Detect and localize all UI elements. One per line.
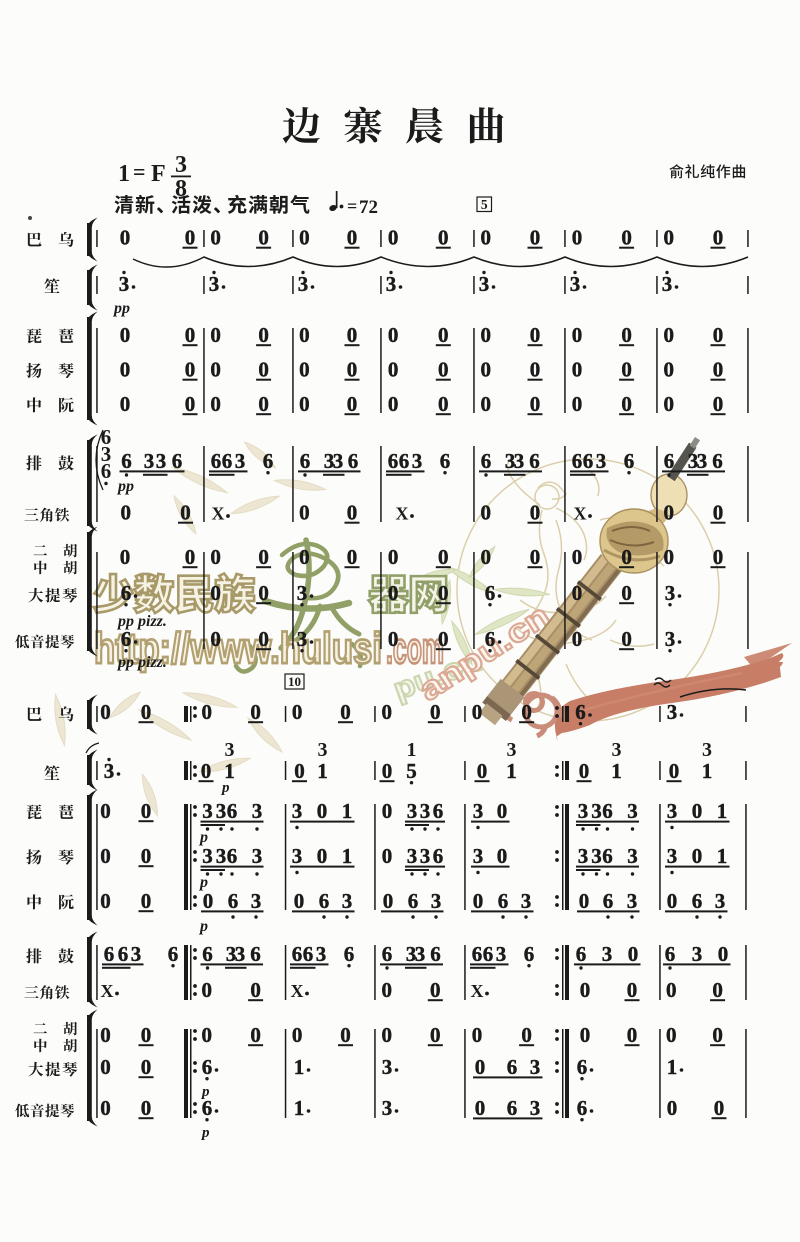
svg-text:3: 3 xyxy=(216,799,227,823)
svg-text:0: 0 xyxy=(210,392,221,416)
svg-text:6: 6 xyxy=(228,889,239,913)
svg-text:10: 10 xyxy=(288,674,301,689)
svg-text:3: 3 xyxy=(144,449,155,473)
svg-text:0: 0 xyxy=(141,799,152,823)
svg-text:0: 0 xyxy=(120,358,131,382)
svg-text:6: 6 xyxy=(483,942,494,966)
svg-text:0: 0 xyxy=(141,1096,152,1120)
svg-text:0: 0 xyxy=(299,323,310,347)
svg-text:3: 3 xyxy=(407,799,418,823)
svg-text:p: p xyxy=(220,780,230,796)
svg-text:0: 0 xyxy=(294,889,305,913)
svg-text:0: 0 xyxy=(572,323,583,347)
svg-text:0: 0 xyxy=(530,358,541,382)
svg-text:0: 0 xyxy=(664,358,675,382)
svg-text:6: 6 xyxy=(692,889,703,913)
svg-text:X: X xyxy=(574,504,587,524)
svg-text:6: 6 xyxy=(211,449,222,473)
svg-text:0: 0 xyxy=(100,889,111,913)
svg-text:0: 0 xyxy=(621,226,632,250)
svg-text:0: 0 xyxy=(572,627,583,651)
svg-text:1: 1 xyxy=(118,161,130,187)
svg-text:0: 0 xyxy=(202,978,213,1002)
svg-text:6: 6 xyxy=(624,449,635,473)
svg-text:0: 0 xyxy=(521,1023,532,1047)
svg-text:6: 6 xyxy=(712,449,723,473)
svg-text:0: 0 xyxy=(347,323,358,347)
svg-text:6: 6 xyxy=(524,942,535,966)
svg-text:3: 3 xyxy=(216,844,227,868)
svg-text:3: 3 xyxy=(612,739,622,761)
svg-text:3: 3 xyxy=(530,1055,541,1079)
svg-text:3: 3 xyxy=(702,739,712,761)
svg-text:0: 0 xyxy=(572,226,583,250)
svg-text:6: 6 xyxy=(507,1055,518,1079)
svg-text:0: 0 xyxy=(347,358,358,382)
svg-text:3: 3 xyxy=(627,889,638,913)
svg-text:0: 0 xyxy=(340,1023,351,1047)
svg-text:0: 0 xyxy=(530,501,541,525)
svg-text:0: 0 xyxy=(713,358,724,382)
svg-text:0: 0 xyxy=(258,358,269,382)
svg-text:3: 3 xyxy=(602,942,613,966)
svg-text:pp: pp xyxy=(112,300,130,317)
svg-text:6: 6 xyxy=(319,889,330,913)
svg-text:6: 6 xyxy=(430,942,441,966)
svg-text:0: 0 xyxy=(185,392,196,416)
svg-text:6: 6 xyxy=(433,844,444,868)
svg-text:F: F xyxy=(151,161,166,187)
svg-text:X: X xyxy=(291,981,304,1001)
svg-text:0: 0 xyxy=(250,700,261,724)
svg-text:3: 3 xyxy=(514,449,525,473)
svg-text:1: 1 xyxy=(702,759,713,783)
svg-text:0: 0 xyxy=(621,358,632,382)
svg-text:0: 0 xyxy=(141,700,152,724)
svg-text:0: 0 xyxy=(340,700,351,724)
svg-text:0: 0 xyxy=(621,323,632,347)
svg-text:0: 0 xyxy=(430,700,441,724)
svg-text:0: 0 xyxy=(299,501,310,525)
svg-text:0: 0 xyxy=(572,581,583,605)
svg-text:72: 72 xyxy=(359,197,378,218)
svg-text:3: 3 xyxy=(415,942,426,966)
svg-text:3: 3 xyxy=(420,799,431,823)
svg-text:0: 0 xyxy=(475,1096,486,1120)
svg-text:3: 3 xyxy=(202,799,213,823)
svg-text:3: 3 xyxy=(297,581,308,605)
svg-text:0: 0 xyxy=(347,392,358,416)
svg-text:0: 0 xyxy=(627,1023,638,1047)
svg-text:6: 6 xyxy=(263,449,274,473)
svg-text:3: 3 xyxy=(382,1096,393,1120)
svg-text:3: 3 xyxy=(667,799,678,823)
svg-text:3: 3 xyxy=(667,700,678,724)
svg-text:0: 0 xyxy=(141,889,152,913)
svg-text:=: = xyxy=(347,196,357,216)
svg-text:0: 0 xyxy=(381,700,392,724)
svg-text:1: 1 xyxy=(342,799,353,823)
svg-text:3: 3 xyxy=(407,844,418,868)
svg-text:0: 0 xyxy=(141,1023,152,1047)
svg-text:0: 0 xyxy=(210,545,221,569)
svg-text:0: 0 xyxy=(473,889,484,913)
svg-text:0: 0 xyxy=(299,358,310,382)
svg-text:3: 3 xyxy=(692,942,703,966)
svg-text:pp pizz.: pp pizz. xyxy=(116,654,167,671)
svg-text:6: 6 xyxy=(498,889,509,913)
svg-text:0: 0 xyxy=(382,844,393,868)
svg-text:6: 6 xyxy=(485,627,496,651)
svg-text:6: 6 xyxy=(602,844,613,868)
svg-text:3: 3 xyxy=(627,844,638,868)
svg-text:0: 0 xyxy=(438,581,449,605)
svg-text:3: 3 xyxy=(530,1096,541,1120)
svg-text:0: 0 xyxy=(438,323,449,347)
svg-text:0: 0 xyxy=(628,942,639,966)
svg-text:0: 0 xyxy=(317,799,328,823)
svg-text:6: 6 xyxy=(292,942,303,966)
svg-text:3: 3 xyxy=(382,1055,393,1079)
svg-text:3: 3 xyxy=(473,799,484,823)
svg-text:3: 3 xyxy=(235,942,246,966)
svg-text:6: 6 xyxy=(250,942,261,966)
svg-text:0: 0 xyxy=(299,226,310,250)
svg-text:p: p xyxy=(200,1125,210,1141)
svg-text:6: 6 xyxy=(665,942,676,966)
svg-text:0: 0 xyxy=(210,358,221,382)
svg-text:0: 0 xyxy=(497,799,508,823)
svg-text:6: 6 xyxy=(121,581,132,605)
svg-text:0: 0 xyxy=(521,700,532,724)
svg-text:0: 0 xyxy=(472,1023,483,1047)
svg-text:6: 6 xyxy=(408,889,419,913)
svg-text:0: 0 xyxy=(579,889,590,913)
svg-text:3: 3 xyxy=(251,889,262,913)
svg-text:0: 0 xyxy=(100,799,111,823)
svg-text:0: 0 xyxy=(666,978,677,1002)
svg-text:0: 0 xyxy=(714,1096,725,1120)
svg-text:3: 3 xyxy=(697,449,708,473)
svg-text:6: 6 xyxy=(222,449,233,473)
svg-text:pp: pp xyxy=(116,478,134,495)
svg-text:3: 3 xyxy=(342,889,353,913)
svg-text:6: 6 xyxy=(202,1096,213,1120)
svg-text:0: 0 xyxy=(438,392,449,416)
svg-text:6: 6 xyxy=(202,1055,213,1079)
svg-text:0: 0 xyxy=(258,323,269,347)
svg-text:0: 0 xyxy=(210,627,221,651)
svg-text:1: 1 xyxy=(342,844,353,868)
svg-text:0: 0 xyxy=(347,226,358,250)
svg-text:3: 3 xyxy=(570,272,581,296)
svg-text:0: 0 xyxy=(258,545,269,569)
svg-text:0: 0 xyxy=(430,978,441,1002)
svg-text:0: 0 xyxy=(481,392,492,416)
svg-text:0: 0 xyxy=(210,226,221,250)
svg-text:3: 3 xyxy=(665,581,676,605)
svg-text:0: 0 xyxy=(210,581,221,605)
svg-text:3: 3 xyxy=(292,799,303,823)
svg-text:0: 0 xyxy=(713,323,724,347)
svg-text:0: 0 xyxy=(692,799,703,823)
svg-text:0: 0 xyxy=(382,759,393,783)
svg-text:6: 6 xyxy=(575,700,586,724)
svg-text:3: 3 xyxy=(591,799,602,823)
svg-text:0: 0 xyxy=(666,1023,677,1047)
svg-text:3: 3 xyxy=(412,449,423,473)
svg-text:6: 6 xyxy=(572,449,583,473)
svg-text:X: X xyxy=(212,504,225,524)
svg-text:0: 0 xyxy=(530,226,541,250)
svg-text:6: 6 xyxy=(481,449,492,473)
svg-text:3: 3 xyxy=(420,844,431,868)
svg-text:X: X xyxy=(471,981,484,1001)
svg-text:3: 3 xyxy=(119,272,130,296)
svg-text:0: 0 xyxy=(572,392,583,416)
svg-text:0: 0 xyxy=(202,700,213,724)
svg-text:0: 0 xyxy=(202,1023,213,1047)
svg-text:0: 0 xyxy=(713,226,724,250)
svg-text:0: 0 xyxy=(120,545,131,569)
svg-text:3: 3 xyxy=(496,942,507,966)
svg-text:0: 0 xyxy=(718,942,729,966)
svg-text:3: 3 xyxy=(175,152,187,178)
svg-text:3: 3 xyxy=(131,942,142,966)
svg-text:0: 0 xyxy=(667,889,678,913)
svg-text:0: 0 xyxy=(713,392,724,416)
svg-text:0: 0 xyxy=(201,759,212,783)
svg-text:3: 3 xyxy=(297,627,308,651)
svg-text:3: 3 xyxy=(596,449,607,473)
svg-text:0: 0 xyxy=(388,627,399,651)
svg-text:6: 6 xyxy=(104,942,115,966)
svg-text:0: 0 xyxy=(621,392,632,416)
svg-text:6: 6 xyxy=(485,581,496,605)
svg-text:0: 0 xyxy=(627,978,638,1002)
svg-text:6: 6 xyxy=(121,627,132,651)
svg-text:0: 0 xyxy=(621,627,632,651)
svg-text:0: 0 xyxy=(100,700,111,724)
svg-text:6: 6 xyxy=(348,449,359,473)
svg-text:3: 3 xyxy=(591,844,602,868)
svg-text:6: 6 xyxy=(472,942,483,966)
svg-text:0: 0 xyxy=(388,323,399,347)
svg-text:0: 0 xyxy=(100,1023,111,1047)
svg-text:0: 0 xyxy=(210,323,221,347)
svg-text:0: 0 xyxy=(388,392,399,416)
svg-text:6: 6 xyxy=(603,889,614,913)
svg-text:6: 6 xyxy=(664,449,675,473)
svg-text:0: 0 xyxy=(475,1055,486,1079)
svg-text:0: 0 xyxy=(388,545,399,569)
svg-text:6: 6 xyxy=(202,942,213,966)
svg-text:0: 0 xyxy=(203,889,214,913)
svg-text:0: 0 xyxy=(100,844,111,868)
svg-text:0: 0 xyxy=(100,1096,111,1120)
svg-text:6: 6 xyxy=(602,799,613,823)
svg-text:3: 3 xyxy=(225,739,235,761)
svg-text:0: 0 xyxy=(299,392,310,416)
svg-text:6: 6 xyxy=(507,1096,518,1120)
svg-text:6: 6 xyxy=(388,449,399,473)
svg-text:0: 0 xyxy=(580,978,591,1002)
svg-text:3: 3 xyxy=(252,799,263,823)
svg-text:5: 5 xyxy=(406,759,417,783)
svg-text:6: 6 xyxy=(227,844,238,868)
svg-text:0: 0 xyxy=(185,323,196,347)
svg-text:6: 6 xyxy=(118,942,129,966)
svg-text:3: 3 xyxy=(252,844,263,868)
svg-text:3: 3 xyxy=(479,272,490,296)
svg-text:3: 3 xyxy=(715,889,726,913)
svg-text:6: 6 xyxy=(227,799,238,823)
svg-text:0: 0 xyxy=(292,1023,303,1047)
svg-text:6: 6 xyxy=(300,449,311,473)
svg-text:0: 0 xyxy=(120,501,131,525)
svg-text:0: 0 xyxy=(120,323,131,347)
svg-text:0: 0 xyxy=(438,545,449,569)
svg-text:3: 3 xyxy=(386,272,397,296)
svg-text:0: 0 xyxy=(250,978,261,1002)
svg-text:0: 0 xyxy=(294,759,305,783)
svg-text:0: 0 xyxy=(388,358,399,382)
svg-text:0: 0 xyxy=(388,226,399,250)
svg-text:6: 6 xyxy=(583,449,594,473)
svg-text:0: 0 xyxy=(481,501,492,525)
svg-text:1: 1 xyxy=(717,844,728,868)
svg-text:3: 3 xyxy=(521,889,532,913)
svg-text:0: 0 xyxy=(250,1023,261,1047)
svg-text:3: 3 xyxy=(507,739,517,761)
svg-text:0: 0 xyxy=(712,978,723,1002)
svg-text:0: 0 xyxy=(258,581,269,605)
svg-text:0: 0 xyxy=(472,700,483,724)
svg-text:3: 3 xyxy=(333,449,344,473)
svg-text:3: 3 xyxy=(156,449,167,473)
svg-text:0: 0 xyxy=(481,226,492,250)
svg-text:0: 0 xyxy=(258,392,269,416)
svg-text:0: 0 xyxy=(477,759,488,783)
svg-text:0: 0 xyxy=(347,545,358,569)
svg-text:6: 6 xyxy=(433,799,444,823)
svg-text:0: 0 xyxy=(712,1023,723,1047)
svg-text:0: 0 xyxy=(438,627,449,651)
svg-text:6: 6 xyxy=(121,449,132,473)
svg-text:3: 3 xyxy=(202,844,213,868)
svg-text:3: 3 xyxy=(667,844,678,868)
svg-text:3: 3 xyxy=(318,739,328,761)
svg-text:1: 1 xyxy=(317,759,328,783)
svg-text:0: 0 xyxy=(388,581,399,605)
svg-text:1: 1 xyxy=(294,1055,305,1079)
svg-text:0: 0 xyxy=(621,545,632,569)
svg-text:p: p xyxy=(198,918,208,935)
svg-text:3: 3 xyxy=(235,449,246,473)
svg-text:0: 0 xyxy=(317,844,328,868)
svg-text:0: 0 xyxy=(481,323,492,347)
svg-text:0: 0 xyxy=(185,358,196,382)
svg-text:0: 0 xyxy=(141,844,152,868)
svg-text:0: 0 xyxy=(185,226,196,250)
svg-text:0: 0 xyxy=(120,226,131,250)
svg-text:X: X xyxy=(396,504,409,524)
svg-text:3: 3 xyxy=(627,799,638,823)
svg-text:0: 0 xyxy=(621,581,632,605)
svg-text:3: 3 xyxy=(292,844,303,868)
svg-text:6: 6 xyxy=(303,942,314,966)
svg-text:6: 6 xyxy=(168,942,179,966)
svg-text:3: 3 xyxy=(209,272,220,296)
svg-text:1: 1 xyxy=(294,1096,305,1120)
svg-text:1: 1 xyxy=(506,759,517,783)
svg-text:0: 0 xyxy=(713,545,724,569)
svg-text:0: 0 xyxy=(692,844,703,868)
svg-text:0: 0 xyxy=(258,627,269,651)
svg-text:0: 0 xyxy=(530,392,541,416)
svg-text:X: X xyxy=(101,981,114,1001)
svg-text:0: 0 xyxy=(120,392,131,416)
svg-text:0: 0 xyxy=(430,1023,441,1047)
svg-text:0: 0 xyxy=(580,1023,591,1047)
svg-text:3: 3 xyxy=(316,942,327,966)
svg-text:0: 0 xyxy=(299,545,310,569)
svg-text:0: 0 xyxy=(497,844,508,868)
svg-text:0: 0 xyxy=(381,978,392,1002)
svg-text:0: 0 xyxy=(100,1055,111,1079)
svg-text:0: 0 xyxy=(481,545,492,569)
svg-text:6: 6 xyxy=(382,942,393,966)
svg-text:0: 0 xyxy=(481,358,492,382)
svg-text:6: 6 xyxy=(529,449,540,473)
svg-text:1: 1 xyxy=(407,739,417,761)
svg-text:0: 0 xyxy=(383,889,394,913)
svg-text:0: 0 xyxy=(664,226,675,250)
svg-text:6: 6 xyxy=(577,1055,588,1079)
svg-text:3: 3 xyxy=(578,799,589,823)
svg-text:0: 0 xyxy=(347,501,358,525)
svg-text:6: 6 xyxy=(101,459,112,483)
svg-text:6: 6 xyxy=(172,449,183,473)
svg-text:0: 0 xyxy=(579,759,590,783)
svg-text:0: 0 xyxy=(292,700,303,724)
svg-text:0: 0 xyxy=(713,501,724,525)
svg-text:0: 0 xyxy=(141,1055,152,1079)
svg-text:0: 0 xyxy=(664,545,675,569)
svg-text:1: 1 xyxy=(717,799,728,823)
svg-text:0: 0 xyxy=(381,1023,392,1047)
svg-text:0: 0 xyxy=(667,1096,678,1120)
svg-text:0: 0 xyxy=(258,226,269,250)
svg-text:0: 0 xyxy=(180,501,191,525)
svg-text:0: 0 xyxy=(572,358,583,382)
svg-text:3: 3 xyxy=(578,844,589,868)
svg-text:0: 0 xyxy=(438,358,449,382)
svg-text:0: 0 xyxy=(664,501,675,525)
svg-text:6: 6 xyxy=(399,449,410,473)
svg-text:0: 0 xyxy=(185,545,196,569)
svg-text:0: 0 xyxy=(382,799,393,823)
svg-text:3: 3 xyxy=(431,889,442,913)
svg-text:6: 6 xyxy=(576,942,587,966)
svg-text:3: 3 xyxy=(473,844,484,868)
svg-text:=: = xyxy=(133,159,146,184)
svg-text:0: 0 xyxy=(664,392,675,416)
svg-text:3: 3 xyxy=(665,627,676,651)
svg-text:0: 0 xyxy=(438,226,449,250)
svg-text:0: 0 xyxy=(572,545,583,569)
svg-text:6: 6 xyxy=(440,449,451,473)
